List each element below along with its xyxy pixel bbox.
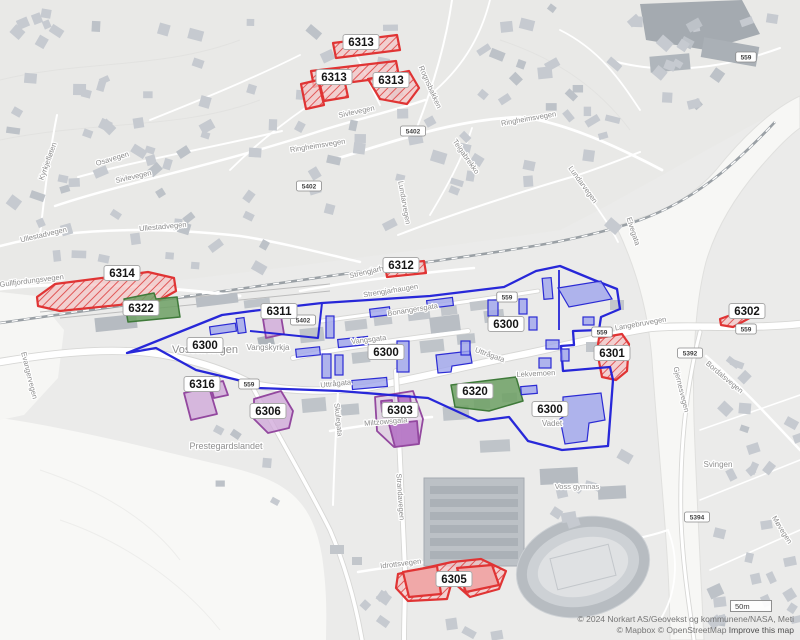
building [71,250,86,258]
building [68,178,80,187]
zone-label-6300[interactable]: 6300 [368,345,404,360]
building [191,262,200,270]
zone-label-6305[interactable]: 6305 [436,572,472,587]
building [143,91,152,98]
zone-label-6313[interactable]: 6313 [373,73,409,88]
zone-label-6313[interactable]: 6313 [316,70,352,85]
building [91,21,100,32]
attribution-line1: © 2024 Norkart AS/Geovekst og kommunene/… [577,614,794,625]
place-label-vadet: Vadet [542,419,563,428]
zone-6300-building[interactable] [546,340,559,349]
place-label-vangskyrkja: Vangskyrkja [247,343,291,352]
zone-label-6306[interactable]: 6306 [250,404,286,419]
svg-text:6300: 6300 [192,340,218,352]
building [582,149,595,162]
zone-6300-building[interactable] [521,385,538,394]
building [352,557,362,565]
svg-text:6313: 6313 [378,75,404,87]
svg-text:5392: 5392 [683,350,698,357]
building [480,439,511,453]
place-label-prestegardslandet: Prestegardslandet [189,441,263,451]
svg-text:6311: 6311 [267,306,293,318]
zone-6300-building[interactable] [236,318,246,334]
building [216,480,225,486]
building [262,458,272,468]
svg-text:559: 559 [741,326,752,333]
zone-label-6316[interactable]: 6316 [184,377,220,392]
building [760,520,773,530]
zone-label-6320[interactable]: 6320 [457,384,493,399]
improve-map-link[interactable]: Improve this map [729,625,794,635]
zone-label-6301[interactable]: 6301 [594,346,630,361]
building [53,250,62,262]
zone-label-6300[interactable]: 6300 [532,402,568,417]
road-shield-5402: 5402 [401,126,426,136]
zone-label-6302[interactable]: 6302 [729,304,765,319]
building [130,233,141,245]
zone-6300-building[interactable] [561,349,569,361]
building [523,175,533,187]
building [24,73,37,84]
road-shield-559: 559 [592,327,613,337]
svg-text:5402: 5402 [406,128,421,135]
road-shield-5402: 5402 [297,181,322,191]
zone-label-6322[interactable]: 6322 [123,301,159,316]
zone-6300-building[interactable] [461,341,470,355]
building [713,596,727,607]
svg-text:6300: 6300 [373,347,399,359]
building [419,339,444,353]
building [383,24,398,30]
building [301,397,326,413]
building [165,252,174,260]
svg-text:6300: 6300 [493,319,519,331]
zone-label-6300[interactable]: 6300 [488,317,524,332]
building [537,66,553,79]
road-shield-559: 559 [736,52,757,62]
building [610,300,624,310]
map-viewport[interactable]: KyrkjefløtenOsavegenSivlevegenSivlevegen… [0,0,800,640]
svg-text:5402: 5402 [302,183,317,190]
zone-6300-building[interactable] [326,316,334,338]
zone-label-6311[interactable]: 6311 [261,304,297,319]
svg-text:6306: 6306 [255,406,281,418]
svg-text:6320: 6320 [462,386,488,398]
zone-6300-building[interactable] [488,300,498,316]
svg-text:6316: 6316 [189,379,215,391]
svg-text:6313: 6313 [321,72,347,84]
road-shield-5392: 5392 [678,348,703,358]
svg-text:6314: 6314 [109,268,135,280]
svg-text:559: 559 [502,294,513,301]
zone-label-6312[interactable]: 6312 [383,258,419,273]
zone-label-6300[interactable]: 6300 [187,338,223,353]
zone-6300-building[interactable] [529,317,537,330]
building [445,618,458,631]
road-shield-559: 559 [736,324,757,334]
svg-text:5394: 5394 [690,514,705,521]
place-label-voss-gymnas: Voss gymnas [555,482,600,491]
zone-6300-building[interactable] [335,355,343,375]
building [299,327,324,343]
zone-label-6303[interactable]: 6303 [382,403,418,418]
zone-label-6313[interactable]: 6313 [343,35,379,50]
scale-bar: 50m [730,600,772,612]
building [766,13,779,24]
road-shield-5394: 5394 [685,512,710,522]
building [573,85,583,93]
building [738,403,751,415]
zone-6300-building[interactable] [296,347,321,357]
svg-text:6313: 6313 [348,37,374,49]
road-shield-559: 559 [239,379,260,389]
svg-text:5402: 5402 [296,317,311,324]
building [133,117,145,129]
building [633,16,643,27]
svg-text:6322: 6322 [128,303,154,315]
building [40,8,51,18]
svg-text:559: 559 [741,54,752,61]
building [330,545,344,554]
svg-text:6303: 6303 [387,405,413,417]
zone-6300-building[interactable] [322,354,331,378]
building [662,92,673,103]
zone-6305-building[interactable] [403,566,441,597]
zone-6300-building[interactable] [519,299,527,314]
building [249,148,262,158]
svg-text:6312: 6312 [388,260,414,272]
scale-label: 50m [735,602,750,611]
building [500,21,513,33]
svg-text:6305: 6305 [441,574,467,586]
map-canvas[interactable]: KyrkjefløtenOsavegenSivlevegenSivlevegen… [0,0,800,640]
building [353,142,366,154]
svg-text:6301: 6301 [599,348,625,360]
map-attribution: © 2024 Norkart AS/Geovekst og kommunene/… [577,614,794,636]
building [354,134,366,143]
svg-text:6300: 6300 [537,404,563,416]
zone-label-6314[interactable]: 6314 [104,266,140,281]
building [584,107,591,116]
zone-6300-building[interactable] [539,358,551,368]
road-shield-559: 559 [497,292,518,302]
zone-6300-building[interactable] [583,317,594,325]
attribution-line2: © Mapbox © OpenStreetMap [617,625,727,635]
svg-text:6302: 6302 [734,306,760,318]
building [269,119,278,130]
svg-text:559: 559 [244,381,255,388]
building [598,485,627,499]
building [397,109,408,119]
building [247,19,255,26]
place-label-svingen: Svingen [704,460,733,469]
svg-text:559: 559 [597,329,608,336]
building [341,403,360,416]
zone-6300-building[interactable] [542,278,553,300]
